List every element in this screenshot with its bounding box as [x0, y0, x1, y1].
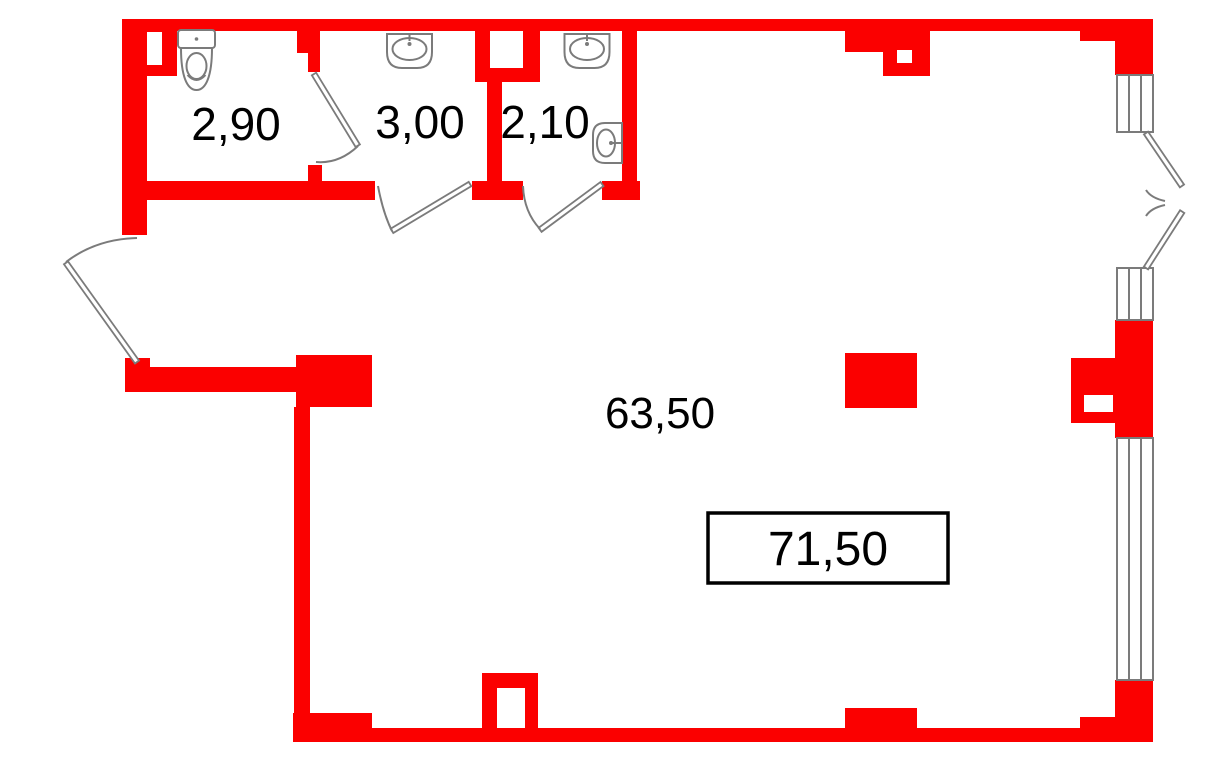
area-label-shower-room: 2,10	[500, 96, 590, 148]
area-label-total: 71,50	[768, 523, 888, 576]
sink-icon	[387, 34, 432, 68]
sink-icon-2	[565, 34, 610, 68]
wall-basin-icon	[593, 123, 622, 163]
area-label-wc: 2,90	[191, 98, 281, 150]
area-label-living-space: 63,50	[605, 389, 715, 438]
floor-plan-page: 2,90 3,00 2,10 63,50 71,50	[0, 0, 1220, 762]
floor-plan-canvas: 2,90 3,00 2,10 63,50 71,50	[0, 0, 1220, 762]
area-label-bathroom: 3,00	[375, 96, 465, 148]
